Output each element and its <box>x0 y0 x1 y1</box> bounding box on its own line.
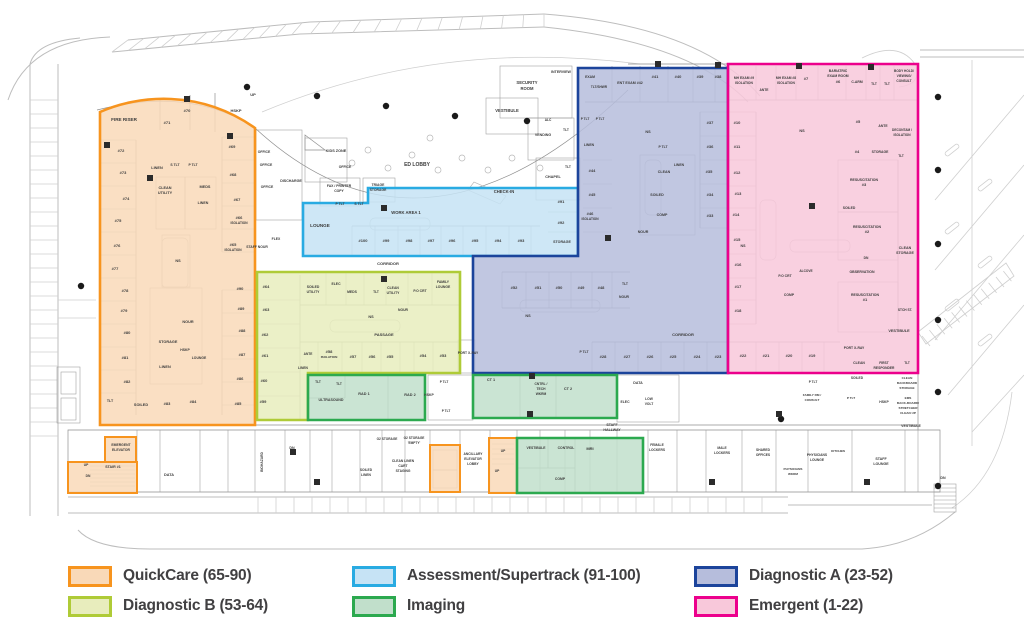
room-label: MH EXAM #9 <box>734 76 754 80</box>
legend-item-diagnostic-a: Diagnostic A (23-52) <box>694 565 893 587</box>
room-label: STAGING <box>396 469 411 473</box>
room-label: #97 <box>428 238 435 243</box>
room-label: RAD 1 <box>358 392 369 396</box>
legend-label-diagnostic-a: Diagnostic A (23-52) <box>749 567 893 585</box>
room-label: #93 <box>518 238 525 243</box>
room-label: #100 <box>359 238 369 243</box>
legend-item-emergent: Emergent (1-22) <box>694 595 863 617</box>
room-label: #75 <box>115 218 122 223</box>
room-label: PHYSICIANS <box>784 467 803 471</box>
room-label: STORAGE <box>899 386 914 390</box>
shaft-block <box>868 64 874 70</box>
room-label: LINEN <box>674 163 685 167</box>
room-label: P TLT <box>658 145 668 149</box>
room-label: NS <box>799 129 805 133</box>
room-label: #11 <box>734 144 741 149</box>
room-label: STAFF <box>875 457 887 461</box>
shaft-block <box>227 133 233 139</box>
room-label: ISOLATION <box>581 217 599 221</box>
room-label: P TLT <box>335 202 345 206</box>
room-label: TLT <box>565 165 572 169</box>
legend-swatch-assessment <box>352 566 396 587</box>
room-label: #4 <box>855 149 860 154</box>
room-label: LOCKERS <box>649 448 666 452</box>
room-label: #14 <box>733 212 740 217</box>
room-label: NS <box>741 244 747 248</box>
room-label: FAX / PRINTER <box>327 184 352 188</box>
room-label: LOUNGE <box>810 458 825 462</box>
room-label: #89 <box>238 306 245 311</box>
room-label: P TLT <box>579 350 589 354</box>
room-label: #28 <box>600 354 607 359</box>
room-label: #50 <box>556 285 563 290</box>
room-label: STORAGE <box>872 150 889 154</box>
room-label: DN <box>864 256 869 260</box>
room-label: NOUR <box>398 308 409 312</box>
room-label: C-ARM <box>851 80 862 84</box>
room-label: SOILED <box>307 285 320 289</box>
room-label: ANCILLARY <box>464 452 484 456</box>
room-label: P TLT <box>440 380 449 384</box>
room-label: P.O CRT <box>413 289 427 293</box>
room-label: #25 <box>670 354 677 359</box>
zone-quickcare-stair <box>68 462 137 493</box>
room-label: STCH ST. <box>898 308 912 312</box>
room-label: #58 <box>326 349 333 354</box>
room-label: OFFICE <box>339 165 352 169</box>
room-label: PORT X-RAY <box>458 351 479 355</box>
room-label: O2 STORAGE <box>404 436 425 440</box>
room-label: LINEN <box>361 473 372 477</box>
column-dot <box>78 283 84 289</box>
room-label: #62 <box>262 332 269 337</box>
room-label: #83 <box>164 401 171 406</box>
room-label: NS <box>368 315 374 319</box>
room-label: P TLT <box>809 380 818 384</box>
room-label: CLEAN <box>902 376 913 380</box>
floor-plan-page: FIRE RISER#70#71HSKP#72#73#74#75#76#77#7… <box>0 0 1024 624</box>
room-label: FIRE RISER <box>111 117 137 122</box>
room-label: #87 <box>239 352 246 357</box>
room-label: SHARED <box>756 448 771 452</box>
column-dot <box>524 118 530 124</box>
shaft-block <box>776 411 782 417</box>
room-label: #41 <box>652 74 659 79</box>
room-label: ELEVATOR <box>112 448 130 452</box>
room-label: TLT <box>563 128 570 132</box>
room-label: ENT EXAM #42 <box>617 81 643 85</box>
room-label: DN <box>86 474 91 478</box>
room-label: #48 <box>598 285 605 290</box>
room-label: #17 <box>735 284 742 289</box>
room-label: ANTE <box>760 88 770 92</box>
room-label: LINEN <box>584 143 595 147</box>
room-label: CHAPEL <box>545 175 561 179</box>
room-label: #53 <box>440 353 447 358</box>
room-label: #79 <box>121 308 128 313</box>
room-label: #26 <box>647 354 654 359</box>
room-label: CNTRL / <box>535 382 548 386</box>
room-label: #20 <box>786 353 793 358</box>
room-label: #44 <box>589 168 596 173</box>
room-label: #12 <box>734 170 741 175</box>
room-label: SECURITY <box>516 80 537 85</box>
room-label: #96 <box>449 238 456 243</box>
zone-emergent <box>728 64 918 373</box>
room-label: LOUNGE <box>310 223 330 228</box>
room-label: TLT <box>315 380 321 384</box>
shaft-block <box>809 203 815 209</box>
room-label: #84 <box>190 399 197 404</box>
column-dot <box>452 113 458 119</box>
room-label: #49 <box>578 285 585 290</box>
shaft-block <box>715 62 721 68</box>
room-label: TLT/SHWR <box>591 85 608 89</box>
room-label: HSKP <box>180 348 190 352</box>
legend-label-imaging: Imaging <box>407 597 465 615</box>
room-label: #55 <box>387 354 394 359</box>
room-label: UTILITY <box>158 191 173 195</box>
room-label: #52 <box>511 285 518 290</box>
room-label: TRIAGE <box>372 183 386 187</box>
legend-item-quickcare: QuickCare (65-90) <box>68 565 251 587</box>
room-label: #91 <box>558 199 565 204</box>
room-label: #63 <box>263 307 270 312</box>
room-label: P.O CRT <box>778 274 792 278</box>
room-label: TLT <box>373 290 379 294</box>
room-label: LOUNGE <box>873 462 889 466</box>
room-label: #3 <box>862 182 867 187</box>
room-label: #21 <box>763 353 770 358</box>
room-label: #38 <box>715 74 722 79</box>
room-label: KIDS ZONE <box>326 149 347 153</box>
room-label: CLEAN UP <box>900 411 916 415</box>
room-label: #68 <box>230 172 237 177</box>
legend-swatch-imaging <box>352 596 396 617</box>
room-label: #59 <box>260 399 267 404</box>
room-label: ANTE <box>304 352 313 356</box>
legend-label-diagnostic-b: Diagnostic B (53-64) <box>123 597 268 615</box>
room-label: O2 STORAGE <box>377 437 398 441</box>
room-label: #5 <box>856 119 861 124</box>
column-dot <box>935 167 941 173</box>
room-label: CART <box>398 464 407 468</box>
room-label: HSKP <box>879 400 889 404</box>
legend-label-emergent: Emergent (1-22) <box>749 597 863 615</box>
room-label: EXAM ROOM <box>827 74 848 78</box>
room-label: HSKP <box>230 108 241 113</box>
room-label: P TLT <box>847 396 855 400</box>
room-label: #88 <box>239 328 246 333</box>
room-label: #92 <box>558 220 565 225</box>
room-label: BARIATRIC <box>829 69 848 73</box>
room-label: DATA <box>633 381 643 385</box>
shaft-block <box>147 175 153 181</box>
room-label: #24 <box>694 354 701 359</box>
room-label: #19 <box>809 353 816 358</box>
room-label: NS <box>525 314 531 318</box>
room-label: VOLT <box>645 402 654 406</box>
room-label: #86 <box>237 376 244 381</box>
room-label: #66 <box>236 215 243 220</box>
room-label: #22 <box>740 353 747 358</box>
room-label: ISOLATION <box>321 355 338 359</box>
room-label: MEDS <box>200 185 211 189</box>
room-label: #60 <box>261 378 268 383</box>
room-label: CLEAN <box>158 186 171 190</box>
room-label: NOUR <box>182 320 193 324</box>
column-dot <box>314 93 320 99</box>
room-label: P TLT <box>188 163 198 167</box>
room-label: EMS <box>905 396 912 400</box>
room-label: #16 <box>735 262 742 267</box>
room-label: #70 <box>184 108 191 113</box>
room-label: ISOLATION <box>230 221 248 225</box>
legend-item-diagnostic-b: Diagnostic B (53-64) <box>68 595 268 617</box>
room-label: HSKP <box>424 393 434 397</box>
room-label: #74 <box>123 196 130 201</box>
room-label: SOILED <box>650 193 664 197</box>
room-label: #76 <box>114 243 121 248</box>
room-label: #64 <box>263 284 270 289</box>
room-label: ROOM <box>520 86 534 91</box>
room-label: #80 <box>124 330 131 335</box>
room-label: #67 <box>234 197 241 202</box>
room-label: ALCOVE <box>799 269 812 273</box>
room-label: P TLT <box>596 117 605 121</box>
room-label: UTILITY <box>387 291 401 295</box>
room-label: STORAGE <box>370 188 387 192</box>
room-label: TLT <box>871 82 877 86</box>
room-label: COMP <box>784 293 795 297</box>
room-label: HALLWAY <box>603 428 621 432</box>
zone-ancillary-stair <box>489 438 517 493</box>
room-label: MRI <box>586 446 593 451</box>
room-label: MEDS <box>347 290 358 294</box>
room-label: #7 <box>804 76 809 81</box>
room-label: NOUR <box>638 230 649 234</box>
room-label: FEMALE <box>650 443 664 447</box>
room-label: TLT <box>107 399 114 403</box>
room-label: OFFICE <box>260 163 273 167</box>
room-label: KITCHEN <box>831 449 846 453</box>
room-label: SOILED <box>134 403 148 407</box>
shaft-block <box>104 142 110 148</box>
room-label: EMERGENT <box>111 443 131 447</box>
room-label: CONTROL <box>558 446 575 450</box>
room-label: COMP <box>555 477 566 481</box>
room-label: CLEAN <box>899 246 912 250</box>
room-label: WORK AREA 1 <box>391 210 421 215</box>
room-label: #94 <box>495 238 502 243</box>
room-label: #99 <box>383 238 390 243</box>
legend-label-assessment: Assessment/Supertrack (91-100) <box>407 567 641 585</box>
room-label: COPY <box>334 189 344 193</box>
room-label: EXAM <box>585 75 595 79</box>
shaft-block <box>184 96 190 102</box>
room-label: LOW <box>645 397 654 401</box>
room-label: CONSULT <box>896 79 911 83</box>
room-label: #51 <box>535 285 542 290</box>
room-label: #82 <box>124 379 131 384</box>
room-label: #37 <box>707 120 714 125</box>
column-dot <box>935 483 941 489</box>
room-label: #56 <box>369 354 376 359</box>
room-label: LOUNGE <box>192 356 207 360</box>
room-label: S TLT <box>354 202 364 206</box>
room-label: STORAGE <box>159 340 178 344</box>
room-label: #77 <box>112 266 119 271</box>
room-label: UP <box>250 92 256 97</box>
room-label: SOILED <box>843 206 856 210</box>
room-label: BIOHAZARD <box>260 451 264 471</box>
room-label: STORAGE <box>896 251 914 255</box>
room-label: #85 <box>235 401 242 406</box>
room-label: COMP <box>657 213 668 217</box>
room-label: OFFICE <box>258 150 271 154</box>
room-label: OFFICES <box>756 453 771 457</box>
room-label: WKRM <box>788 472 798 476</box>
floor-plan-drawing: FIRE RISER#70#71HSKP#72#73#74#75#76#77#7… <box>0 0 1024 552</box>
column-dot <box>244 84 250 90</box>
room-label: LOCKERS <box>714 451 731 455</box>
room-label: #72 <box>118 148 125 153</box>
room-label: ISOLATION <box>224 248 242 252</box>
room-label: #46 <box>587 211 594 216</box>
room-label: ULTRASOUND <box>319 398 344 402</box>
room-label: CONSULT <box>805 398 820 402</box>
room-label: OFFICE <box>261 185 274 189</box>
room-label: FIRST <box>879 361 889 365</box>
room-label: ELEC <box>620 400 630 404</box>
room-label: #33 <box>707 213 714 218</box>
column-dot <box>935 317 941 323</box>
room-label: FAMILY RM / <box>803 393 822 397</box>
room-label: VENDING <box>535 133 552 137</box>
legend-swatch-quickcare <box>68 566 112 587</box>
room-label: TLT <box>898 154 904 158</box>
room-label: WKRM <box>536 392 547 396</box>
room-label: P TLT <box>581 117 590 121</box>
room-label: STORAGE <box>553 240 571 244</box>
department-zones <box>68 64 918 493</box>
room-label: MH EXAM #8 <box>776 76 796 80</box>
room-label: LINEN <box>298 366 309 370</box>
room-label: ALC <box>545 118 552 122</box>
room-label: CORRIDOR <box>377 261 399 266</box>
room-label: #61 <box>262 353 269 358</box>
room-label: BACK-BOARD/ <box>897 401 919 405</box>
zone-assessment <box>303 188 578 256</box>
room-label: #35 <box>706 169 713 174</box>
room-label: CT 2 <box>564 387 572 391</box>
room-label: PASSAGE <box>374 332 394 337</box>
shaft-block <box>864 479 870 485</box>
shaft-block <box>709 479 715 485</box>
column-dot <box>935 241 941 247</box>
room-label: TLT <box>622 282 629 286</box>
shaft-block <box>529 373 535 379</box>
room-label: UP <box>501 449 506 453</box>
column-dot <box>935 389 941 395</box>
room-label: #45 <box>589 192 596 197</box>
room-label: UP <box>84 463 89 467</box>
room-label: #40 <box>675 74 682 79</box>
room-label: #65 <box>230 242 237 247</box>
room-label: VESTIBULE <box>888 329 910 333</box>
room-label: ELEC <box>331 282 341 286</box>
room-label: FAMILY <box>437 280 450 284</box>
legend-swatch-diagnostic-a <box>694 566 738 587</box>
room-label: SOILED <box>851 376 864 380</box>
room-label: #27 <box>624 354 631 359</box>
room-label: ISOLATION <box>735 81 753 85</box>
room-label: LINEN <box>151 166 163 170</box>
room-label: 'EMPTY' <box>408 441 421 445</box>
room-label: UP <box>495 469 500 473</box>
room-label: ED LOBBY <box>404 162 431 168</box>
legend-item-assessment: Assessment/Supertrack (91-100) <box>352 565 641 587</box>
shaft-block <box>796 63 802 69</box>
room-label: LINEN <box>159 365 171 369</box>
room-label: STAFF <box>606 423 618 427</box>
room-label: STAFF NOUR <box>246 245 268 249</box>
room-label: #2 <box>865 229 870 234</box>
column-dot <box>383 103 389 109</box>
room-label: ISOLATION <box>777 81 795 85</box>
room-label: SOILED <box>360 468 373 472</box>
room-label: #13 <box>735 191 742 196</box>
room-label: P TLT <box>442 409 451 413</box>
room-label: #54 <box>420 353 427 358</box>
room-label: DECONTAM / <box>892 128 912 132</box>
room-label: LINEN <box>198 201 209 205</box>
room-label: TLT <box>884 82 890 86</box>
room-label: STAIR #1 <box>105 465 121 469</box>
room-label: #69 <box>229 144 236 149</box>
room-label: #1 <box>863 297 868 302</box>
room-label: PORT X-RAY <box>844 346 865 350</box>
room-label: TLT <box>336 382 342 386</box>
room-label: CLEAN <box>658 170 671 174</box>
room-label: #23 <box>715 354 722 359</box>
room-label: CLEAN <box>387 286 399 290</box>
room-label: CORRIDOR <box>672 332 694 337</box>
room-label: #98 <box>406 238 413 243</box>
legend-label-quickcare: QuickCare (65-90) <box>123 567 251 585</box>
room-label: S TLT <box>170 163 180 167</box>
room-label: DISCHARGE <box>280 179 302 183</box>
room-label: PHYSICIANS <box>807 453 828 457</box>
zone-ancillary-elevator <box>430 445 460 492</box>
room-label: FLEX <box>272 237 281 241</box>
room-label: BODY HOLD/ <box>894 69 914 73</box>
legend-swatch-emergent <box>694 596 738 617</box>
legend-item-imaging: Imaging <box>352 595 465 617</box>
room-label: MALE <box>717 446 727 450</box>
room-label: #15 <box>734 237 741 242</box>
room-label: TLT <box>904 361 910 365</box>
room-label: UTILITY <box>307 290 321 294</box>
room-label: VIEWING/ <box>897 74 912 78</box>
shaft-block <box>381 205 387 211</box>
room-label: VESTIBULE <box>495 108 519 113</box>
room-label: VESTIBULE <box>901 424 921 428</box>
room-label: #6 <box>836 79 841 84</box>
room-label: #10 <box>734 120 741 125</box>
room-label: RAD 2 <box>404 393 415 397</box>
room-label: CLEAN <box>853 361 865 365</box>
